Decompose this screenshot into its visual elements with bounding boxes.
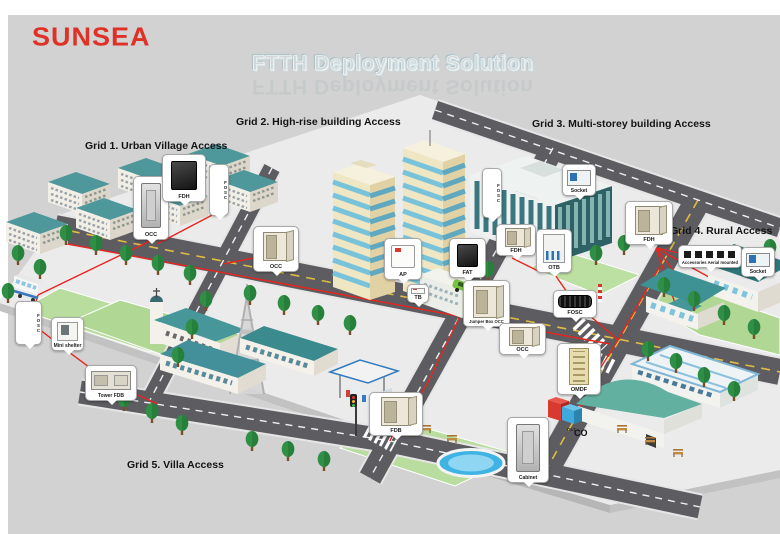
callout-fosc: FOSC	[482, 168, 502, 218]
co-label: CO	[574, 428, 588, 438]
callout-label: Accessories Aerial mounted	[682, 261, 738, 266]
grid-label-1: Grid 1. Urban Village Access	[85, 140, 227, 152]
callout-fosc: FOSC	[553, 290, 597, 318]
cabinet-open-icon	[372, 395, 420, 428]
callout-fdh: FDH	[162, 154, 206, 202]
callout-occ: OCC	[499, 323, 546, 355]
callout-label: FOSC	[567, 310, 582, 316]
callout-label: TB	[414, 295, 421, 301]
callout-socket: Socket	[562, 164, 596, 196]
callout-occ: OCC	[253, 226, 299, 272]
callout-label: FDH	[510, 248, 521, 254]
olt-box	[562, 404, 582, 424]
socket-icon	[565, 167, 593, 189]
callout-cabinet: Cabinet	[507, 417, 549, 483]
callout-label: Jumper Box OCC	[469, 320, 504, 325]
callout-label: FOSC	[222, 180, 227, 200]
olt-box-label: OLT	[567, 427, 576, 432]
rack-icon	[560, 346, 598, 387]
cabinet-open-icon	[628, 204, 670, 237]
callout-label: Tower FDB	[98, 394, 124, 400]
sunsea-logo: SUNSEA	[32, 23, 151, 52]
cabinet-icon	[510, 420, 546, 476]
splitter-icon	[539, 232, 569, 265]
callout-label: FDH	[643, 237, 654, 243]
callout-fat: FAT	[449, 238, 486, 278]
shelter-icon	[54, 320, 81, 344]
grid-label-2: Grid 2. High-rise building Access	[236, 116, 401, 128]
swimming-pool	[438, 450, 504, 477]
cabinet-open-icon	[502, 326, 543, 347]
wallbox-icon	[387, 241, 419, 272]
callout-ap: AP	[384, 238, 422, 280]
small-box-icon	[410, 287, 426, 295]
callout-accessories-aerial-mounted: Accessories Aerial mounted	[678, 245, 742, 268]
callout-label: OCC	[270, 264, 282, 270]
cabinet-wide-icon	[88, 368, 134, 394]
socket-icon	[744, 250, 772, 270]
cabinet-open-icon	[466, 283, 507, 320]
callout-fdb: FDB	[369, 392, 423, 436]
callout-mini-shelter: Mini shelter	[51, 317, 84, 351]
callout-label: FDB	[390, 428, 401, 434]
callout-label: OTB	[548, 265, 560, 271]
device-dark-icon	[165, 157, 203, 194]
page-title-reflection: FTTH Deployment Solution	[252, 74, 533, 98]
ftth-deployment-poster: SUNSEA FTTH Deployment Solution FTTH Dep…	[0, 0, 780, 534]
callout-label: Cabinet	[519, 476, 537, 482]
callout-label: Socket	[750, 270, 766, 276]
callout-fdh: FDH	[496, 224, 536, 256]
callout-otb: OTB	[536, 229, 572, 273]
closure-horizontal-icon	[556, 293, 594, 310]
callout-socket: Socket	[741, 247, 775, 277]
cabinet-open-icon	[499, 227, 533, 248]
callout-fdh: FDH	[625, 201, 673, 245]
callout-label: Socket	[571, 189, 587, 195]
callout-label: FOSC	[35, 313, 40, 333]
callout-tower-fdb: Tower FDB	[85, 365, 137, 401]
callout-label: OCC	[516, 347, 528, 353]
callout-tb: TB	[407, 284, 429, 303]
callout-label: OMDF	[571, 387, 587, 393]
callout-label: OCC	[145, 232, 157, 238]
cabinet-open-icon	[256, 229, 296, 264]
callout-label: FOSC	[495, 183, 500, 203]
callout-omdf: OMDF	[557, 343, 601, 395]
grid-label-4: Grid 4. Rural Access	[670, 225, 772, 237]
device-dark-icon	[452, 241, 483, 270]
grid-label-3: Grid 3. Multi-storey building Access	[532, 118, 711, 130]
callout-label: Mini shelter	[54, 344, 82, 350]
grid-label-5: Grid 5. Villa Access	[127, 459, 224, 471]
callout-jumper-box-occ: Jumper Box OCC	[463, 280, 510, 327]
callout-fosc: FOSC	[15, 301, 42, 345]
callout-label: AP	[399, 272, 407, 278]
callout-label: FDH	[178, 194, 189, 200]
page-title: FTTH Deployment Solution	[252, 52, 533, 76]
callout-label: FAT	[463, 270, 473, 276]
hardware-icon	[681, 248, 739, 261]
callout-fosc: FOSC	[209, 164, 229, 216]
